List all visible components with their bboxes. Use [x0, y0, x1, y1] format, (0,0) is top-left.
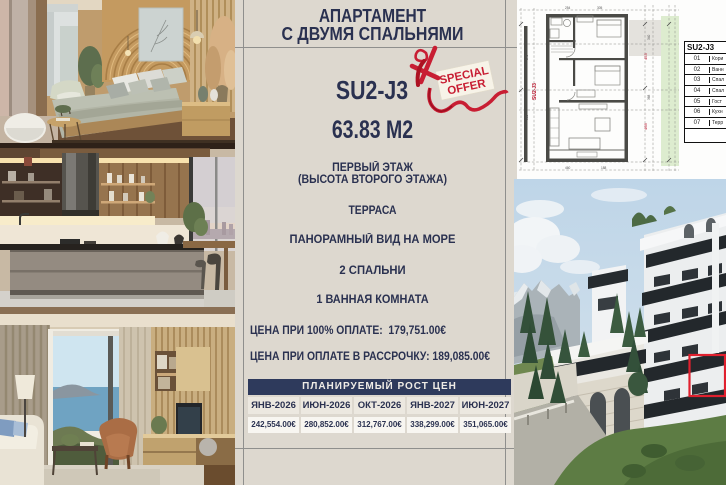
svg-text:460: 460: [565, 166, 571, 170]
svg-text:468: 468: [643, 123, 648, 130]
svg-text:368: 368: [647, 94, 651, 100]
svg-text:SU2-J3: SU2-J3: [532, 83, 538, 100]
svg-text:140: 140: [525, 54, 529, 60]
svg-text:380: 380: [525, 114, 529, 120]
svg-text:254: 254: [565, 6, 571, 10]
svg-text:453: 453: [643, 53, 648, 60]
svg-text:305: 305: [597, 6, 603, 10]
svg-text:188: 188: [601, 166, 607, 170]
svg-text:340: 340: [647, 34, 651, 40]
